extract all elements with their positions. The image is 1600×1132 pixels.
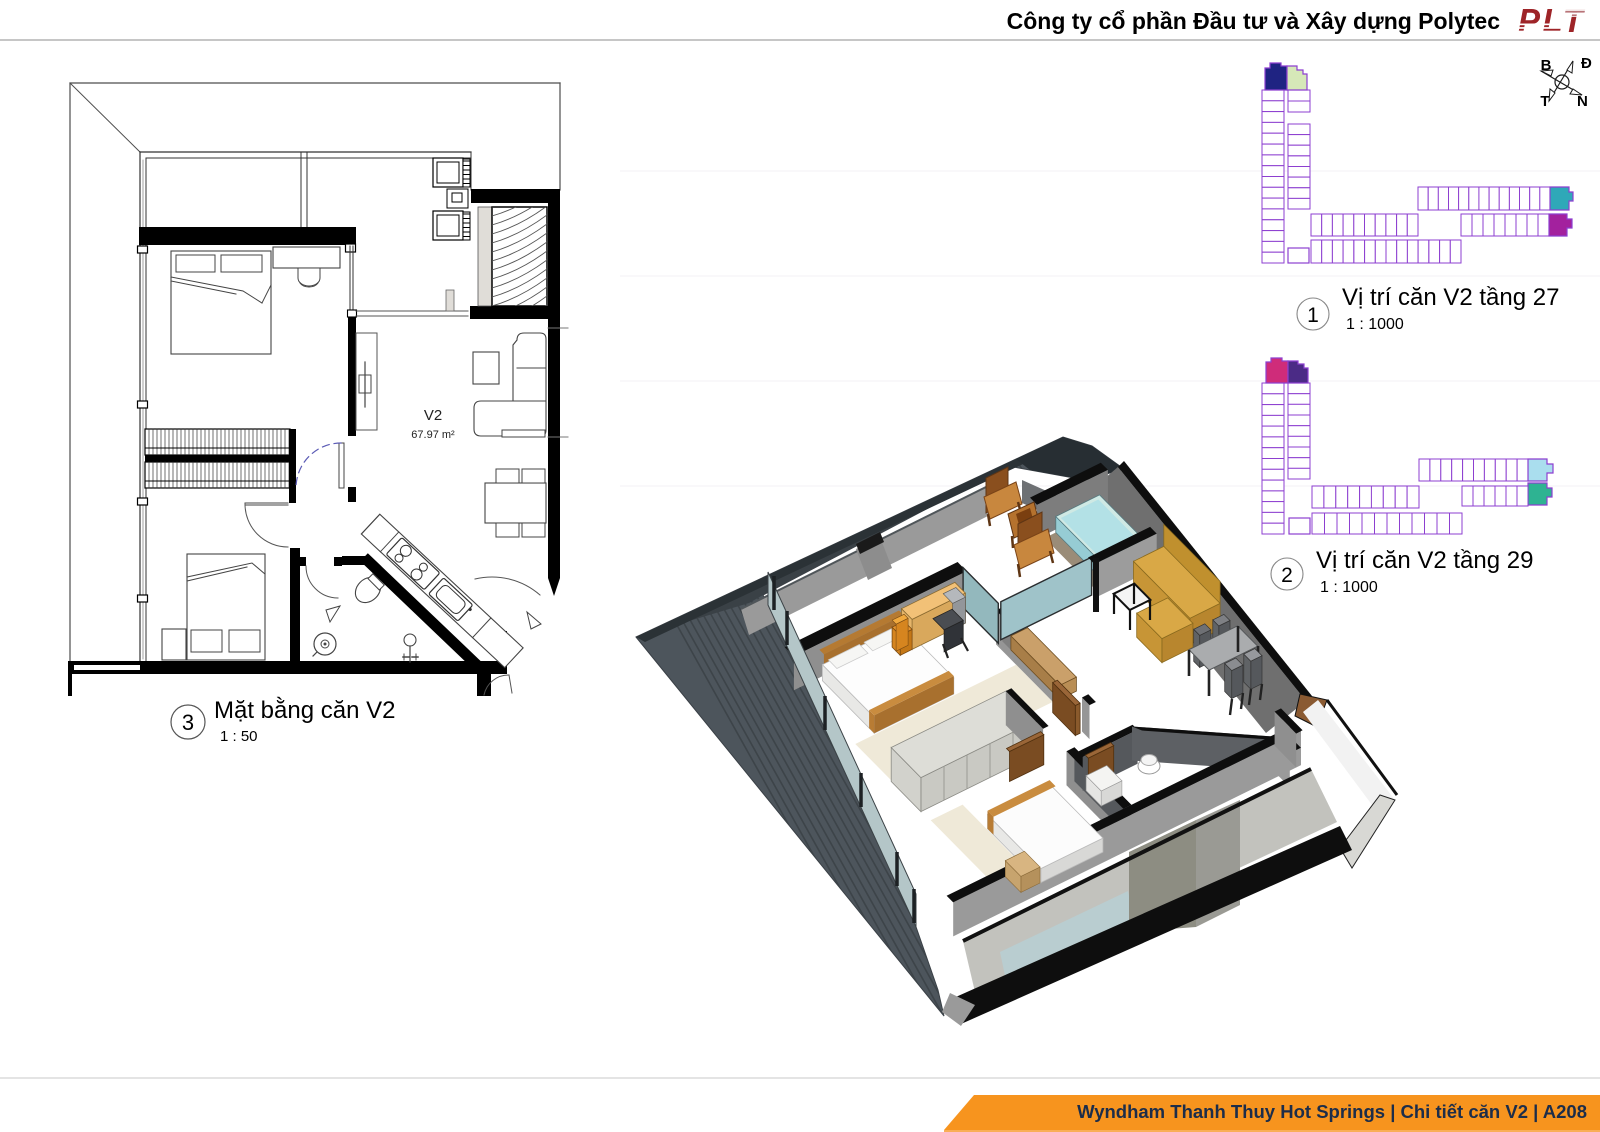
svg-text:2: 2 <box>1281 564 1293 587</box>
svg-text:B: B <box>1541 57 1552 74</box>
svg-text:3: 3 <box>182 710 194 735</box>
svg-text:Đ: Đ <box>1581 55 1592 72</box>
svg-text:Công ty cổ phần Đầu tư và Xây: Công ty cổ phần Đầu tư và Xây dựng Polyt… <box>1007 8 1501 34</box>
svg-text:Wyndham Thanh Thuy Hot Springs: Wyndham Thanh Thuy Hot Springs | Chi tiế… <box>1077 1101 1587 1122</box>
svg-text:Vị trí căn V2 tầng 29: Vị trí căn V2 tầng 29 <box>1316 547 1533 574</box>
svg-text:1: 1 <box>1307 304 1319 327</box>
svg-text:67.97 m²: 67.97 m² <box>411 429 455 441</box>
svg-text:Vị trí căn V2 tầng 27: Vị trí căn V2 tầng 27 <box>1342 284 1559 311</box>
svg-text:T: T <box>1540 93 1549 110</box>
svg-text:1 : 1000: 1 : 1000 <box>1320 579 1378 596</box>
svg-text:1 : 50: 1 : 50 <box>220 728 258 745</box>
svg-text:Mặt bằng căn V2: Mặt bằng căn V2 <box>214 697 395 724</box>
svg-text:1 : 1000: 1 : 1000 <box>1346 316 1404 333</box>
svg-text:N: N <box>1577 93 1588 110</box>
svg-text:V2: V2 <box>424 407 442 424</box>
